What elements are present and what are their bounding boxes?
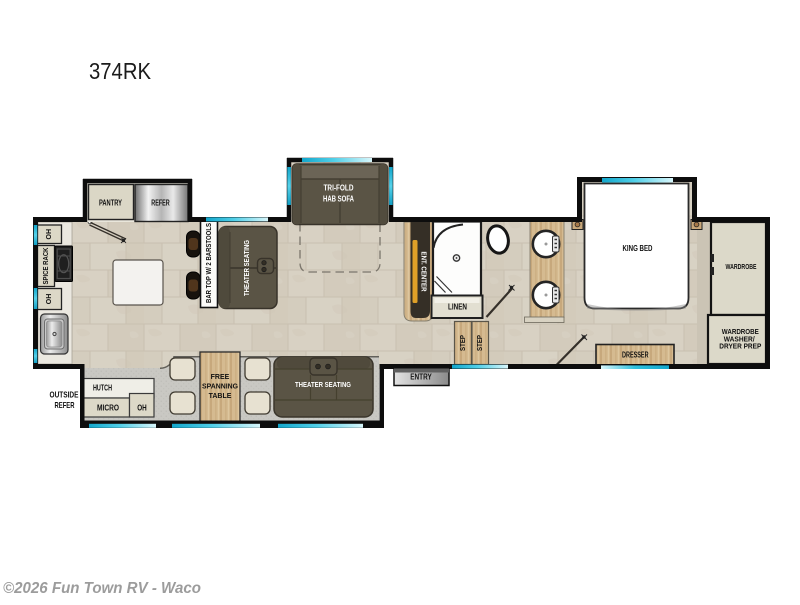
svg-text:REFER: REFER	[151, 198, 170, 207]
svg-text:FREE: FREE	[211, 374, 230, 381]
svg-text:SPICE RACK: SPICE RACK	[43, 248, 50, 285]
svg-text:THEATER SEATING: THEATER SEATING	[295, 380, 351, 389]
svg-text:©2026 Fun Town RV - Waco: ©2026 Fun Town RV - Waco	[3, 580, 201, 597]
svg-text:OUTSIDE: OUTSIDE	[50, 390, 79, 400]
svg-text:TRI-FOLD: TRI-FOLD	[324, 183, 354, 192]
svg-text:DRESSER: DRESSER	[622, 351, 649, 360]
svg-text:374RK: 374RK	[89, 58, 151, 84]
svg-text:ENT. CENTER: ENT. CENTER	[419, 252, 426, 292]
svg-text:OH: OH	[46, 229, 53, 240]
svg-text:BAR TOP W/ 2 BARSTOOLS: BAR TOP W/ 2 BARSTOOLS	[204, 223, 213, 303]
svg-text:KING BED: KING BED	[623, 244, 653, 253]
svg-text:HAB SOFA: HAB SOFA	[323, 194, 354, 203]
svg-text:LINEN: LINEN	[448, 303, 467, 312]
svg-text:TABLE: TABLE	[209, 393, 232, 400]
svg-text:MICRO: MICRO	[97, 403, 119, 412]
svg-text:PANTRY: PANTRY	[99, 198, 122, 207]
svg-text:DRYER PREP: DRYER PREP	[719, 342, 761, 351]
svg-text:OH: OH	[137, 403, 147, 412]
svg-text:OH: OH	[46, 294, 53, 305]
svg-text:HUTCH: HUTCH	[93, 384, 112, 393]
svg-text:REFER: REFER	[55, 400, 75, 410]
svg-text:STEP: STEP	[460, 335, 467, 351]
svg-text:STEP: STEP	[477, 335, 484, 351]
svg-text:WARDROBE: WARDROBE	[726, 262, 757, 271]
svg-text:SPANNING: SPANNING	[202, 384, 239, 391]
svg-text:ENTRY: ENTRY	[410, 372, 432, 381]
svg-text:THEATER SEATING: THEATER SEATING	[242, 240, 251, 296]
